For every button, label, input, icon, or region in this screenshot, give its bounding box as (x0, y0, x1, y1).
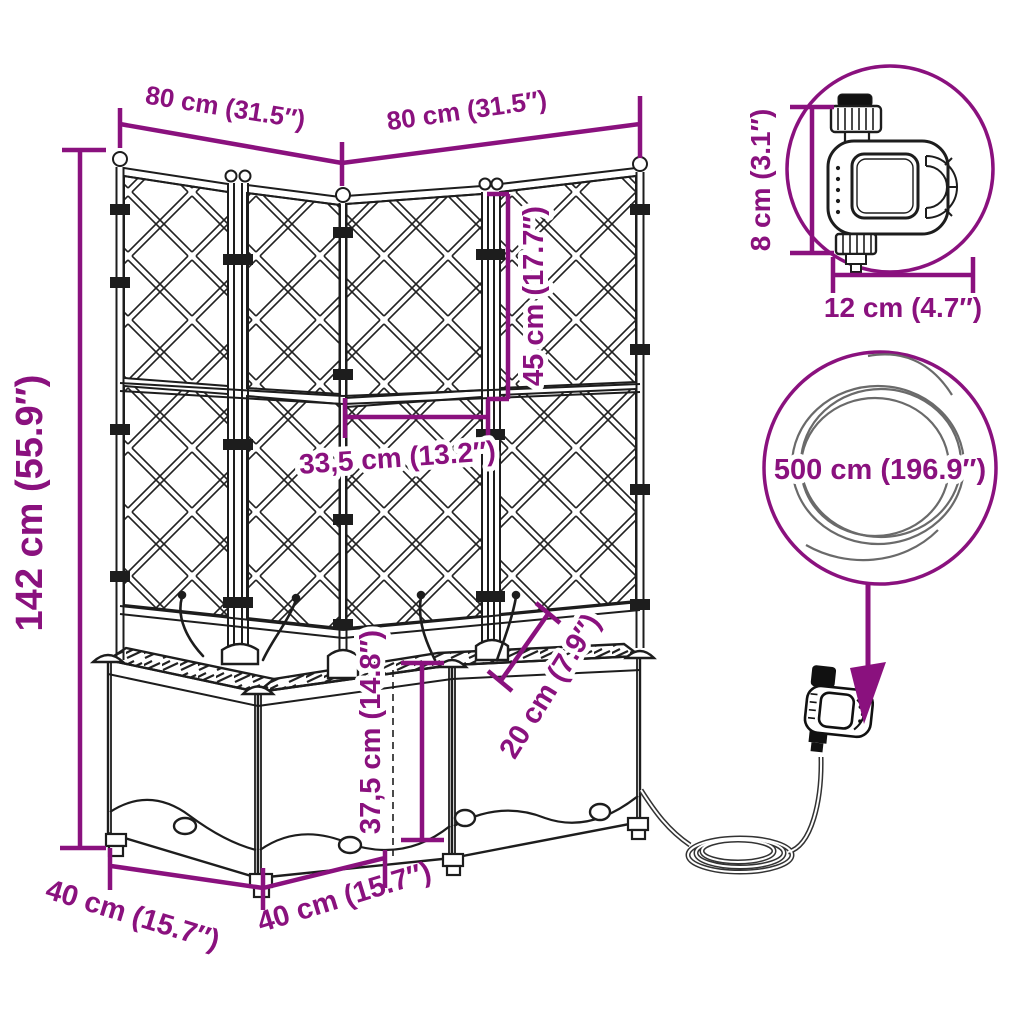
timer-bottom-nut (836, 234, 876, 254)
apron-cutout (339, 837, 361, 853)
timer-hose-nipple (811, 742, 824, 752)
trellis (111, 152, 649, 672)
trellis-panel-left-lower-2 (247, 396, 340, 628)
trellis-panel-right-lower-2 (500, 389, 636, 614)
product-dimension-diagram: 80 cm (31.5″) 80 cm (31.5″) 142 cm (55.9… (0, 0, 1024, 1024)
dim-total-height-label: 142 cm (55.9″) (9, 375, 51, 632)
dim-planter-height-label: 37,5 cm (14.8″) (355, 630, 387, 834)
trellis-panel-right-upper-1 (346, 194, 482, 398)
timer-display-inner (857, 159, 913, 213)
timer-display (818, 692, 854, 729)
apron-cutout (174, 818, 196, 834)
dim-trellis-section-label: 45 cm (17.7″) (518, 206, 550, 386)
dim-hose-length-label: 500 cm (196.9″) (774, 454, 986, 486)
trellis-panel-left-upper-1 (124, 176, 228, 386)
dim-timer-height-label: 8 cm (3.1″) (745, 109, 776, 252)
trellis-panel-left-upper-2 (247, 193, 340, 394)
dim-timer-width-label: 12 cm (4.7″) (824, 292, 982, 323)
trellis-panel-right-lower-1 (346, 397, 482, 628)
timer-top-connector (810, 665, 836, 688)
trellis-panel-left-lower-1 (124, 386, 228, 616)
apron-cutout (590, 804, 610, 820)
post-mount-left (222, 644, 258, 664)
timer-bottom-collar (846, 254, 866, 264)
apron-cutout (455, 810, 475, 826)
timer-bottom-connector (808, 731, 827, 744)
post-mount-corner (328, 650, 358, 678)
timer-bottom-tube (851, 264, 861, 272)
